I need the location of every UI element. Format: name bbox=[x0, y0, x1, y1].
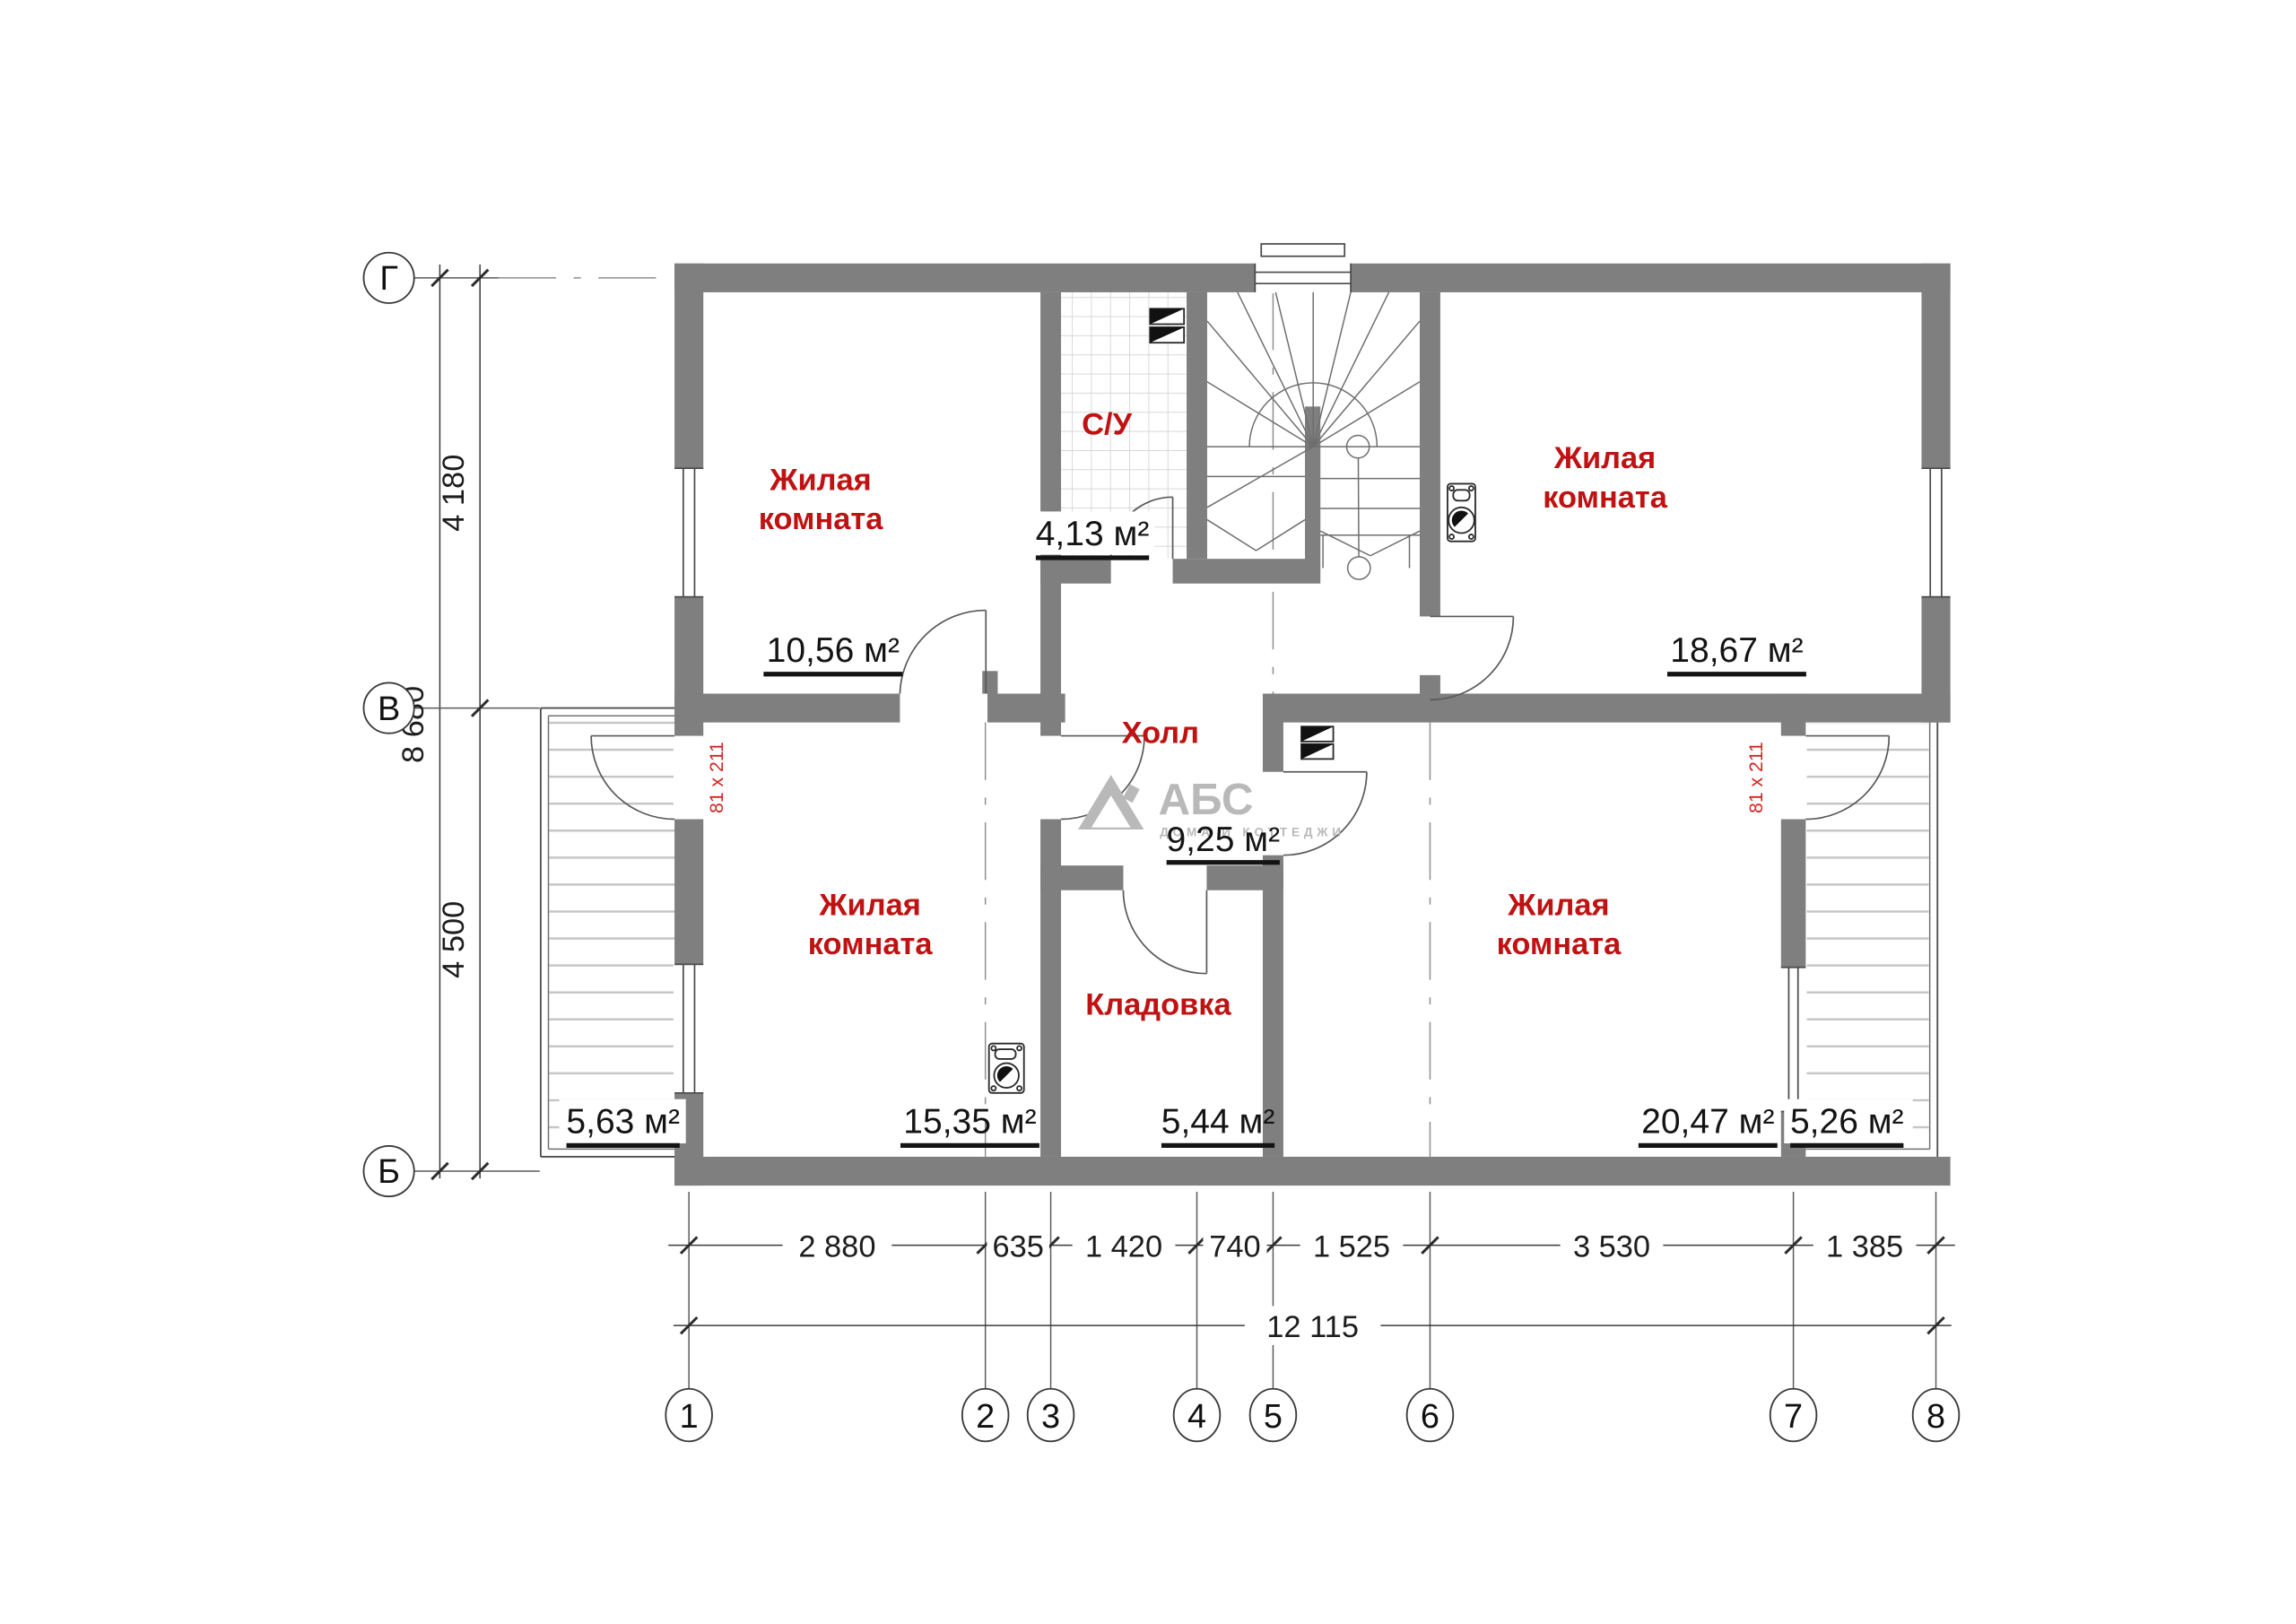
area-top-left: 10,56 м² bbox=[767, 631, 900, 670]
door-size-label-right: 81 x 211 bbox=[1746, 742, 1767, 813]
dim-span-4-5: 740 bbox=[1209, 1229, 1260, 1264]
watermark-brand: АБС bbox=[1158, 775, 1253, 824]
area-bottom-left: 15,35 м² bbox=[903, 1103, 1036, 1142]
room-label-storage: Кладовка bbox=[1085, 988, 1231, 1022]
svg-text:комната: комната bbox=[759, 502, 884, 536]
washing-machine-icon-top-right-room bbox=[1448, 483, 1475, 541]
area-hall: 9,25 м² bbox=[1166, 821, 1280, 859]
door-top-left-room bbox=[900, 611, 986, 694]
door-size-label-left: 81 x 211 bbox=[707, 742, 727, 813]
wall-openings bbox=[674, 263, 1952, 1112]
axis-label-2: 2 bbox=[976, 1398, 995, 1436]
axis-label-7: 7 bbox=[1784, 1398, 1803, 1436]
dim-left-span-bottom: 4 500 bbox=[437, 901, 471, 978]
room-label-bottom-right: Жилая bbox=[1507, 888, 1609, 922]
door-storage bbox=[1123, 890, 1206, 974]
dim-span-1-2: 2 880 bbox=[798, 1229, 875, 1264]
axis-label-4: 4 bbox=[1187, 1398, 1206, 1436]
bottom-axis-markers: 1 2 3 4 5 6 7 8 bbox=[665, 1389, 1959, 1442]
axis-label-1: 1 bbox=[680, 1398, 699, 1436]
door-hall-to-bottom-right-room bbox=[1283, 772, 1367, 855]
svg-text:комната: комната bbox=[808, 927, 934, 961]
left-dimensions: 4 180 4 500 8 680 bbox=[396, 265, 540, 1179]
area-right-balcony: 5,26 м² bbox=[1790, 1103, 1904, 1142]
floor-plan-drawing: АБС ДОМА И КОТТЕДЖИ Жилая комната С/У Жи… bbox=[0, 0, 2296, 1624]
floor-plan-page: АБС ДОМА И КОТТЕДЖИ Жилая комната С/У Жи… bbox=[0, 0, 2296, 1624]
left-axis-markers: Г В Б bbox=[363, 253, 413, 1196]
room-label-hall: Холл bbox=[1122, 716, 1199, 751]
area-left-balcony: 5,63 м² bbox=[566, 1103, 680, 1142]
area-labels: 10,56 м² 4,13 м² 18,67 м² 9,25 м² 15,35 … bbox=[560, 511, 1913, 1145]
area-storage: 5,44 м² bbox=[1161, 1103, 1275, 1142]
washing-machine-icon-bottom-left-room bbox=[989, 1044, 1024, 1093]
area-top-right: 18,67 м² bbox=[1670, 631, 1803, 670]
room-label-bathroom: С/У bbox=[1082, 407, 1132, 441]
room-label-top-left: Жилая bbox=[769, 463, 871, 497]
svg-text:комната: комната bbox=[1543, 481, 1668, 515]
dim-left-span-top: 4 180 bbox=[437, 455, 471, 532]
room-label-bottom-left: Жилая bbox=[818, 888, 920, 922]
walls bbox=[674, 264, 1951, 1185]
area-bottom-right: 20,47 м² bbox=[1641, 1103, 1774, 1142]
axis-label-8: 8 bbox=[1926, 1398, 1945, 1436]
bottom-dimensions: 2 880 635 1 420 740 1 525 3 530 1 385 12… bbox=[668, 1192, 1955, 1389]
axis-label-6: 6 bbox=[1421, 1398, 1439, 1436]
dim-span-6-7: 3 530 bbox=[1573, 1229, 1650, 1264]
windows bbox=[674, 244, 1951, 1111]
axis-label-v: В bbox=[378, 690, 400, 728]
door-top-right-room bbox=[1430, 616, 1513, 699]
axis-label-5: 5 bbox=[1264, 1398, 1283, 1436]
dim-span-3-4: 1 420 bbox=[1085, 1229, 1162, 1264]
svg-text:комната: комната bbox=[1497, 927, 1622, 961]
left-balcony bbox=[541, 708, 689, 1157]
axis-label-b: Б bbox=[378, 1153, 400, 1191]
dim-span-2-3: 635 bbox=[992, 1229, 1043, 1264]
area-bathroom: 4,13 м² bbox=[1036, 515, 1150, 553]
axis-label-3: 3 bbox=[1041, 1398, 1060, 1436]
axis-label-g: Г bbox=[379, 260, 398, 298]
vent-grille-icon-hall bbox=[1301, 726, 1334, 759]
room-label-top-right: Жилая bbox=[1553, 441, 1656, 475]
dim-span-7-8: 1 385 bbox=[1826, 1229, 1903, 1264]
dim-bottom-total: 12 115 bbox=[1266, 1310, 1359, 1344]
dim-span-5-6: 1 525 bbox=[1313, 1229, 1390, 1264]
